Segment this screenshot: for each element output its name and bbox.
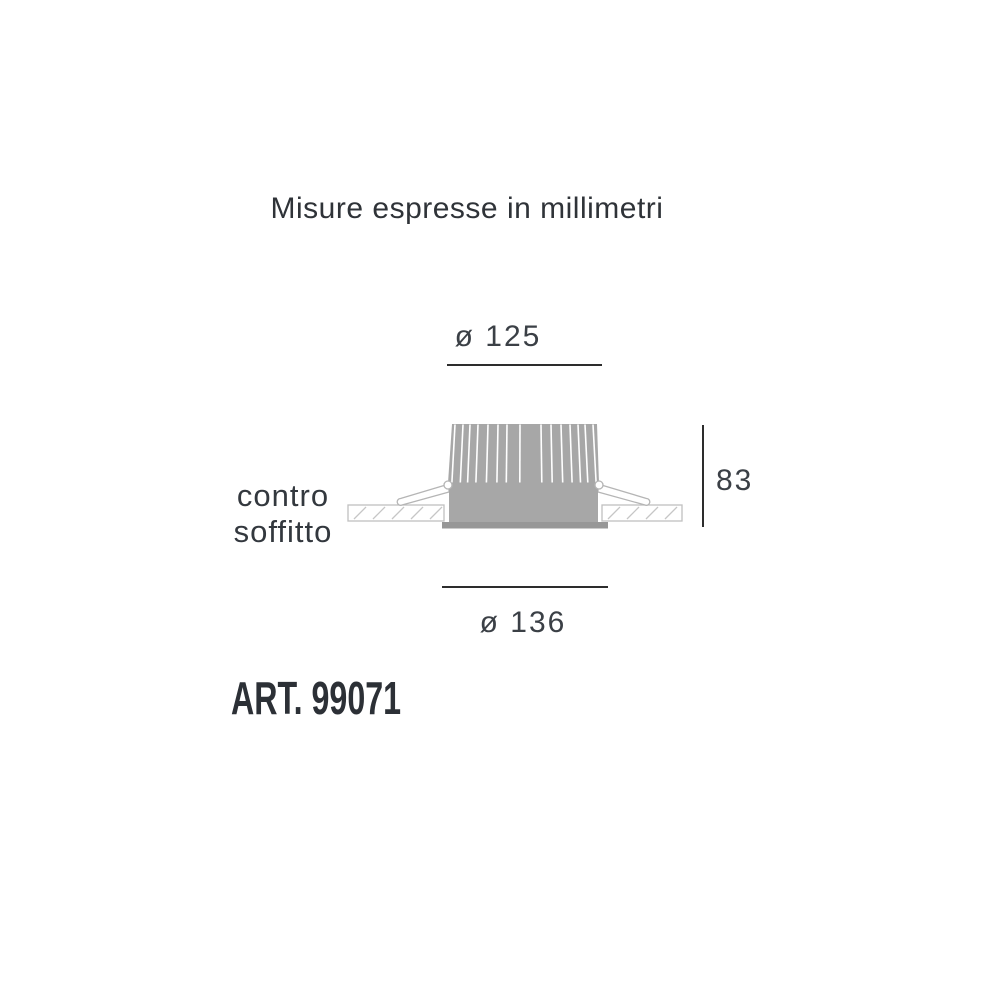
clip-pivot-left	[444, 481, 452, 489]
ceiling-label-line1: contro	[183, 478, 383, 514]
trim-flange	[442, 522, 608, 529]
spring-clip-left	[397, 484, 449, 505]
heatsink	[448, 424, 599, 483]
ceiling-panel-right	[602, 505, 682, 521]
dimension-top-diameter: ø 125	[418, 320, 578, 354]
dimension-height: 83	[716, 464, 753, 498]
ceiling-label-line2: soffitto	[183, 514, 383, 550]
article-number: ART. 99071	[231, 671, 401, 725]
fixture-drawing	[0, 0, 1000, 1000]
spring-clip-right	[598, 484, 650, 505]
lamp-body	[449, 483, 598, 522]
dimension-bottom-diameter: ø 136	[443, 606, 603, 640]
ceiling-label: contro soffitto	[183, 478, 383, 550]
clip-pivot-right	[595, 481, 603, 489]
diagram-page: Misure espresse in millimetri	[0, 0, 1000, 1000]
